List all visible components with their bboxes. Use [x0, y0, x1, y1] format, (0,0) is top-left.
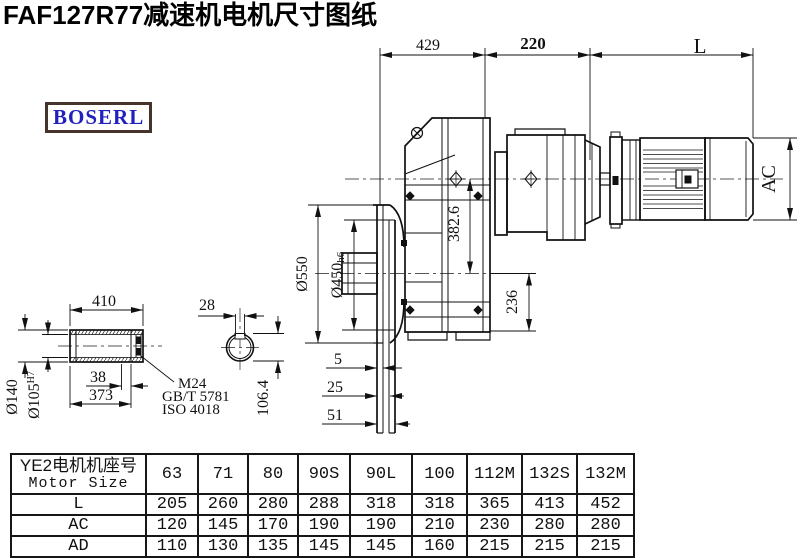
output-flange [342, 205, 407, 433]
table-cell: 215 [577, 536, 634, 557]
table-col-header: 71 [198, 454, 248, 494]
table-cell: 135 [248, 536, 298, 557]
table-cell: 145 [298, 536, 350, 557]
table-col-header: 90S [298, 454, 350, 494]
table-col-header: 132M [577, 454, 634, 494]
row-label: L [11, 494, 146, 515]
table-cell: 318 [412, 494, 467, 515]
shaft-key [613, 176, 619, 185]
dim-236: 236 [504, 290, 521, 314]
table-cell: 215 [467, 536, 522, 557]
table-cell: 280 [522, 515, 577, 536]
table-corner-header: YE2电机机座号 Motor Size [11, 454, 146, 494]
table-cell: 190 [350, 515, 412, 536]
table-cell: 145 [198, 515, 248, 536]
dim-550: Ø550 [294, 256, 311, 292]
keyway [235, 334, 245, 340]
table-row: AC 120 145 170 190 190 210 230 280 280 [11, 515, 634, 536]
dim-220: 220 [520, 34, 546, 53]
table-cell: 205 [146, 494, 198, 515]
bolt-mark-icon [406, 192, 414, 200]
table-row: L 205 260 280 288 318 318 365 413 452 [11, 494, 634, 515]
bolt-mark-icon [406, 306, 414, 314]
table-cell: 190 [298, 515, 350, 536]
table-cell: 130 [198, 536, 248, 557]
table-cell: 160 [412, 536, 467, 557]
table-cell: 260 [198, 494, 248, 515]
centerlines [58, 179, 783, 370]
dim-140: Ø140 [4, 379, 21, 415]
table-col-header: 63 [146, 454, 198, 494]
table-cell: 110 [146, 536, 198, 557]
table-col-header: 90L [350, 454, 412, 494]
bolt-mark-icon [474, 306, 482, 314]
dim-25: 25 [327, 379, 343, 396]
header-en: Motor Size [12, 475, 145, 492]
dim-429: 429 [416, 37, 440, 54]
header-cn: YE2电机机座号 [12, 456, 145, 475]
technical-drawing: 429 220 L [0, 0, 800, 460]
table-cell: 280 [248, 494, 298, 515]
table-cell: 215 [522, 536, 577, 557]
table-cell: 318 [350, 494, 412, 515]
dim-38: 38 [90, 369, 106, 386]
table-cell: 120 [146, 515, 198, 536]
shaft-dim-lines [18, 304, 284, 408]
table-cell: 365 [467, 494, 522, 515]
table-col-header: 112M [467, 454, 522, 494]
row-label: AD [11, 536, 146, 557]
dim-AC: AC [758, 165, 780, 193]
table-col-header: 100 [412, 454, 467, 494]
dim-51: 51 [327, 407, 343, 424]
table-cell: 170 [248, 515, 298, 536]
table-cell: 288 [298, 494, 350, 515]
table-cell: 230 [467, 515, 522, 536]
label-std-iso: ISO 4018 [162, 402, 220, 418]
dim-373: 373 [89, 387, 113, 404]
table-col-header: 80 [248, 454, 298, 494]
table-cell: 452 [577, 494, 634, 515]
motor-size-table: YE2电机机座号 Motor Size 63 71 80 90S 90L 100… [10, 453, 635, 558]
row-label: AC [11, 515, 146, 536]
table-cell: 145 [350, 536, 412, 557]
dim-28: 28 [199, 297, 215, 314]
dim-106-4: 106.4 [255, 380, 272, 416]
bolt-mark-icon [474, 192, 482, 200]
dim-382-6: 382.6 [446, 206, 463, 242]
table-col-header: 132S [522, 454, 577, 494]
dim-105: Ø105H7 [26, 371, 43, 419]
dim-L: L [694, 34, 707, 58]
table-header-row: YE2电机机座号 Motor Size 63 71 80 90S 90L 100… [11, 454, 634, 494]
dim-410: 410 [92, 293, 116, 310]
table-cell: 280 [577, 515, 634, 536]
motor [610, 132, 753, 228]
dim-5: 5 [334, 351, 342, 368]
table-cell: 413 [522, 494, 577, 515]
dim-450: Ø450h6 [329, 251, 347, 298]
table-cell: 210 [412, 515, 467, 536]
table-row: AD 110 130 135 145 145 160 215 215 215 [11, 536, 634, 557]
drawing-page: { "title": "FAF127R77减速机电机尺寸图纸", "brand"… [0, 0, 800, 557]
